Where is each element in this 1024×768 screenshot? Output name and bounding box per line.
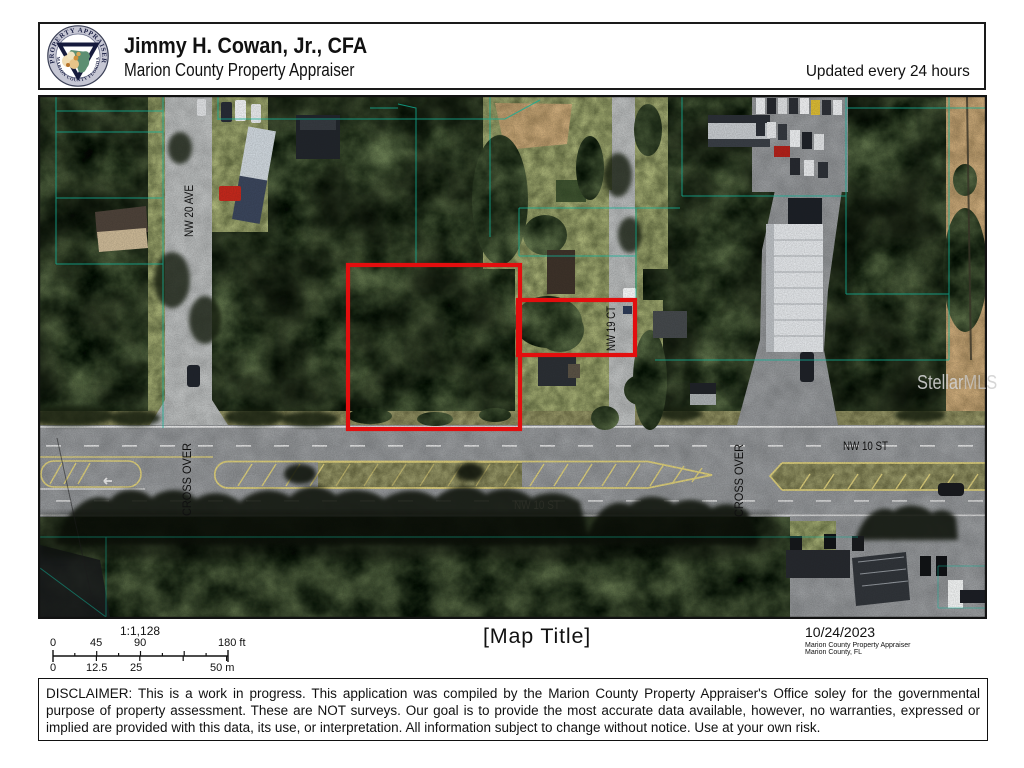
svg-text:NW 10 ST: NW 10 ST [843,439,889,453]
svg-text:CROSS OVER: CROSS OVER [182,443,194,516]
svg-text:CROSS OVER: CROSS OVER [734,444,746,517]
svg-text:NW 19 CT: NW 19 CT [606,306,618,351]
svg-text:NW 10 ST: NW 10 ST [514,500,560,512]
svg-text:NW 20 AVE: NW 20 AVE [182,185,196,237]
